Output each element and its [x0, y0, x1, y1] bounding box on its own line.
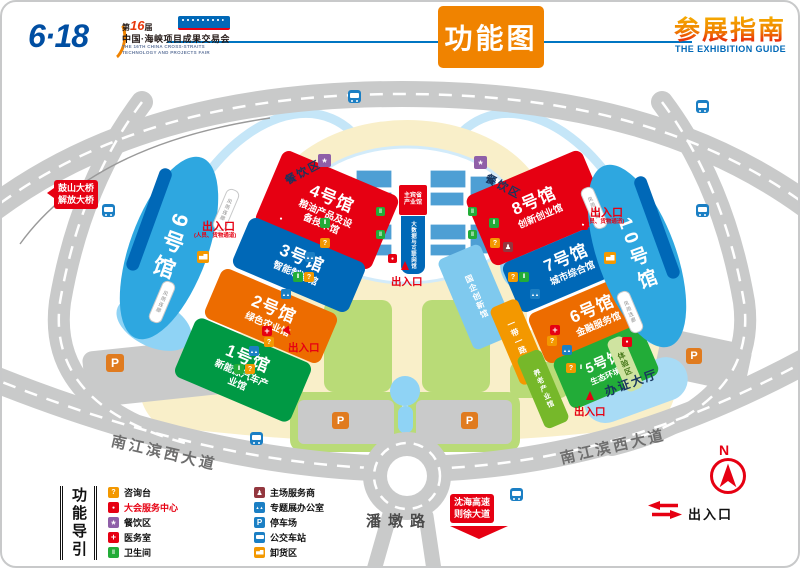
toilet-icon: [468, 230, 477, 239]
unloading-icon: [254, 547, 265, 558]
legend-label: 专题展办公室: [270, 501, 324, 514]
bus-stop-icon: [696, 100, 709, 113]
parking-icon: [686, 348, 702, 364]
service-center-icon: [276, 214, 286, 224]
bridge-line1: 鼓山大桥: [58, 183, 94, 195]
center-hall-line1: 主宾省: [404, 193, 422, 201]
bus-stop-icon: [102, 204, 115, 217]
exit-legend-label: 出入口: [688, 504, 733, 523]
entrance-east-note: (人员、货物通道): [582, 217, 624, 225]
legend-label: 停车场: [270, 516, 297, 529]
legend-item-parking: 停车场: [254, 516, 297, 529]
legend-item-service-center: 大会服务中心: [108, 501, 178, 514]
office-icon: [281, 289, 291, 299]
legend-title: 功能导引: [68, 487, 89, 559]
parking-icon: [461, 412, 478, 429]
office-icon: [562, 345, 572, 355]
parking-icon: [106, 354, 124, 372]
toilet-icon: [376, 230, 385, 239]
compass-north-label: N: [719, 442, 729, 458]
toilet-icon: [234, 364, 244, 374]
entrance-center-label: 出入口: [391, 274, 423, 289]
legend-item-office: 专题展办公室: [254, 501, 324, 514]
info-desk-icon: [508, 272, 518, 282]
office-icon: [254, 502, 265, 513]
service-center-icon: [388, 254, 397, 263]
unloading-icon: [197, 251, 209, 263]
legend-label: 医务室: [124, 531, 151, 544]
legend-label: 餐饮区: [124, 516, 151, 529]
bus-stop-icon: [348, 90, 361, 103]
toilet-icon: [293, 272, 303, 282]
toilet-icon: [468, 207, 477, 216]
info-desk-icon: [245, 364, 255, 374]
bridge-badge: 鼓山大桥 解放大桥: [54, 180, 98, 209]
entrance-center-arrow: [401, 261, 409, 270]
legend-label: 卫生间: [124, 546, 151, 559]
office-icon: [530, 289, 540, 299]
legend-item-info-desk: 咨询台: [108, 486, 151, 499]
compass-icon: [710, 458, 746, 494]
legend-item-organizer: 主场服务商: [254, 486, 315, 499]
bridge-line2: 解放大桥: [58, 195, 94, 207]
toilet-icon: [519, 272, 529, 282]
area-soe-innovation-label: 国企创新馆: [463, 273, 492, 321]
entrance-badge-hall-label: 出入口: [574, 404, 606, 419]
legend-item-unloading: 卸货区: [254, 546, 297, 559]
bus-icon: [254, 532, 265, 543]
entrance-badge-hall-arrow: [586, 391, 594, 400]
info-desk-icon: [490, 238, 500, 248]
roundabout: [363, 432, 451, 520]
organizer-icon: [503, 242, 513, 252]
legend-label: 大会服务中心: [124, 501, 178, 514]
medical-icon: [550, 325, 560, 335]
dining-icon: [108, 517, 119, 528]
expressway-line1: 沈海高速: [454, 497, 490, 509]
center-hall-band-label: 大数据与互联网馆: [409, 221, 417, 269]
bus-stop-icon: [250, 432, 263, 445]
organizer-icon: [254, 487, 265, 498]
parking-icon: [254, 517, 265, 528]
legend-label: 公交车站: [270, 531, 306, 544]
bus-stop-icon: [696, 204, 709, 217]
legend-item-medical: 医务室: [108, 531, 151, 544]
legend-label: 主场服务商: [270, 486, 315, 499]
legend-label: 卸货区: [270, 546, 297, 559]
office-icon: [249, 346, 259, 356]
medical-icon: [108, 532, 119, 543]
legend-item-dining: 餐饮区: [108, 516, 151, 529]
function-map-page: 6·18 第16届 中国·海峡项目成果交易会 THE 16TH CHINA CR…: [0, 0, 800, 568]
entrance-southwest-label: 出入口: [288, 340, 320, 355]
unloading-icon: [604, 252, 616, 264]
legend-title-block: 功能导引: [60, 486, 97, 560]
expressway-badge: 沈海高速 则徐大道: [450, 494, 494, 523]
info-desk-icon: [547, 336, 557, 346]
legend-label: 咨询台: [124, 486, 151, 499]
toilet-icon: [108, 547, 119, 558]
entrance-west-note: (人员、货物通道): [194, 231, 236, 239]
info-desk-icon: [108, 487, 119, 498]
service-center-icon: [622, 337, 632, 347]
parking-icon: [332, 412, 349, 429]
office-icon: [305, 252, 315, 262]
medical-icon: [262, 326, 272, 336]
legend-item-bus: 公交车站: [254, 531, 306, 544]
toilet-icon: [376, 207, 385, 216]
center-hall-line2: 产业馆: [404, 200, 422, 208]
center-hall-red-label: 主宾省 产业馆: [399, 185, 427, 215]
toilet-icon: [320, 218, 330, 228]
info-desk-icon: [320, 238, 330, 248]
info-desk-icon: [566, 363, 576, 373]
info-desk-icon: [264, 337, 274, 347]
bus-stop-icon: [510, 488, 523, 501]
toilet-icon: [489, 218, 499, 228]
dining-icon: [474, 156, 487, 169]
toilet-icon: [576, 363, 586, 373]
expressway-line2: 则徐大道: [454, 509, 490, 521]
service-center-icon: [108, 502, 119, 513]
info-desk-icon: [304, 272, 314, 282]
legend-item-toilet: 卫生间: [108, 546, 151, 559]
road-pandun: 潘墩路: [366, 510, 432, 531]
